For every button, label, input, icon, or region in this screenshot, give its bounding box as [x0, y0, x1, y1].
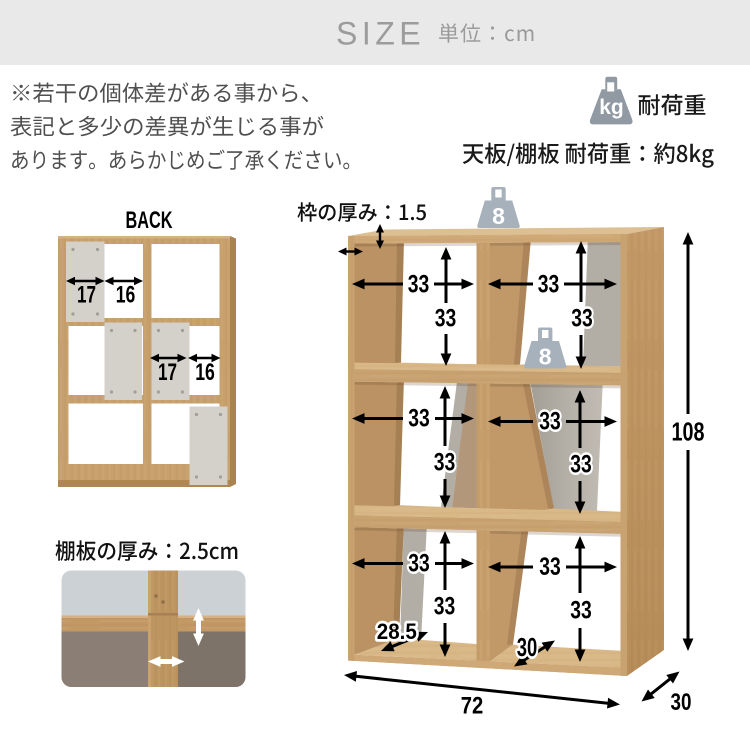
svg-text:33: 33 [408, 405, 430, 433]
svg-text:33: 33 [539, 553, 561, 581]
svg-text:8: 8 [539, 343, 552, 369]
svg-text:BACK: BACK [126, 207, 173, 234]
svg-text:28.5: 28.5 [377, 619, 417, 644]
svg-text:kg: kg [599, 96, 624, 119]
svg-text:17: 17 [158, 360, 177, 386]
svg-text:33: 33 [538, 271, 560, 299]
svg-text:17: 17 [77, 283, 96, 309]
svg-text:72: 72 [461, 693, 484, 720]
svg-text:108: 108 [672, 417, 705, 447]
svg-text:33: 33 [570, 597, 592, 625]
svg-text:30: 30 [671, 689, 692, 716]
svg-text:33: 33 [434, 593, 456, 621]
svg-text:SIZE: SIZE [336, 16, 425, 52]
svg-text:16: 16 [195, 360, 215, 386]
svg-text:33: 33 [570, 451, 592, 479]
svg-text:8: 8 [492, 203, 505, 229]
svg-text:33: 33 [408, 271, 430, 299]
svg-text:33: 33 [435, 305, 457, 333]
svg-text:33: 33 [434, 449, 456, 477]
svg-text:33: 33 [539, 408, 561, 436]
svg-text:33: 33 [408, 550, 430, 578]
svg-text:16: 16 [116, 283, 136, 309]
svg-text:30: 30 [517, 632, 538, 662]
svg-text:33: 33 [571, 305, 593, 333]
